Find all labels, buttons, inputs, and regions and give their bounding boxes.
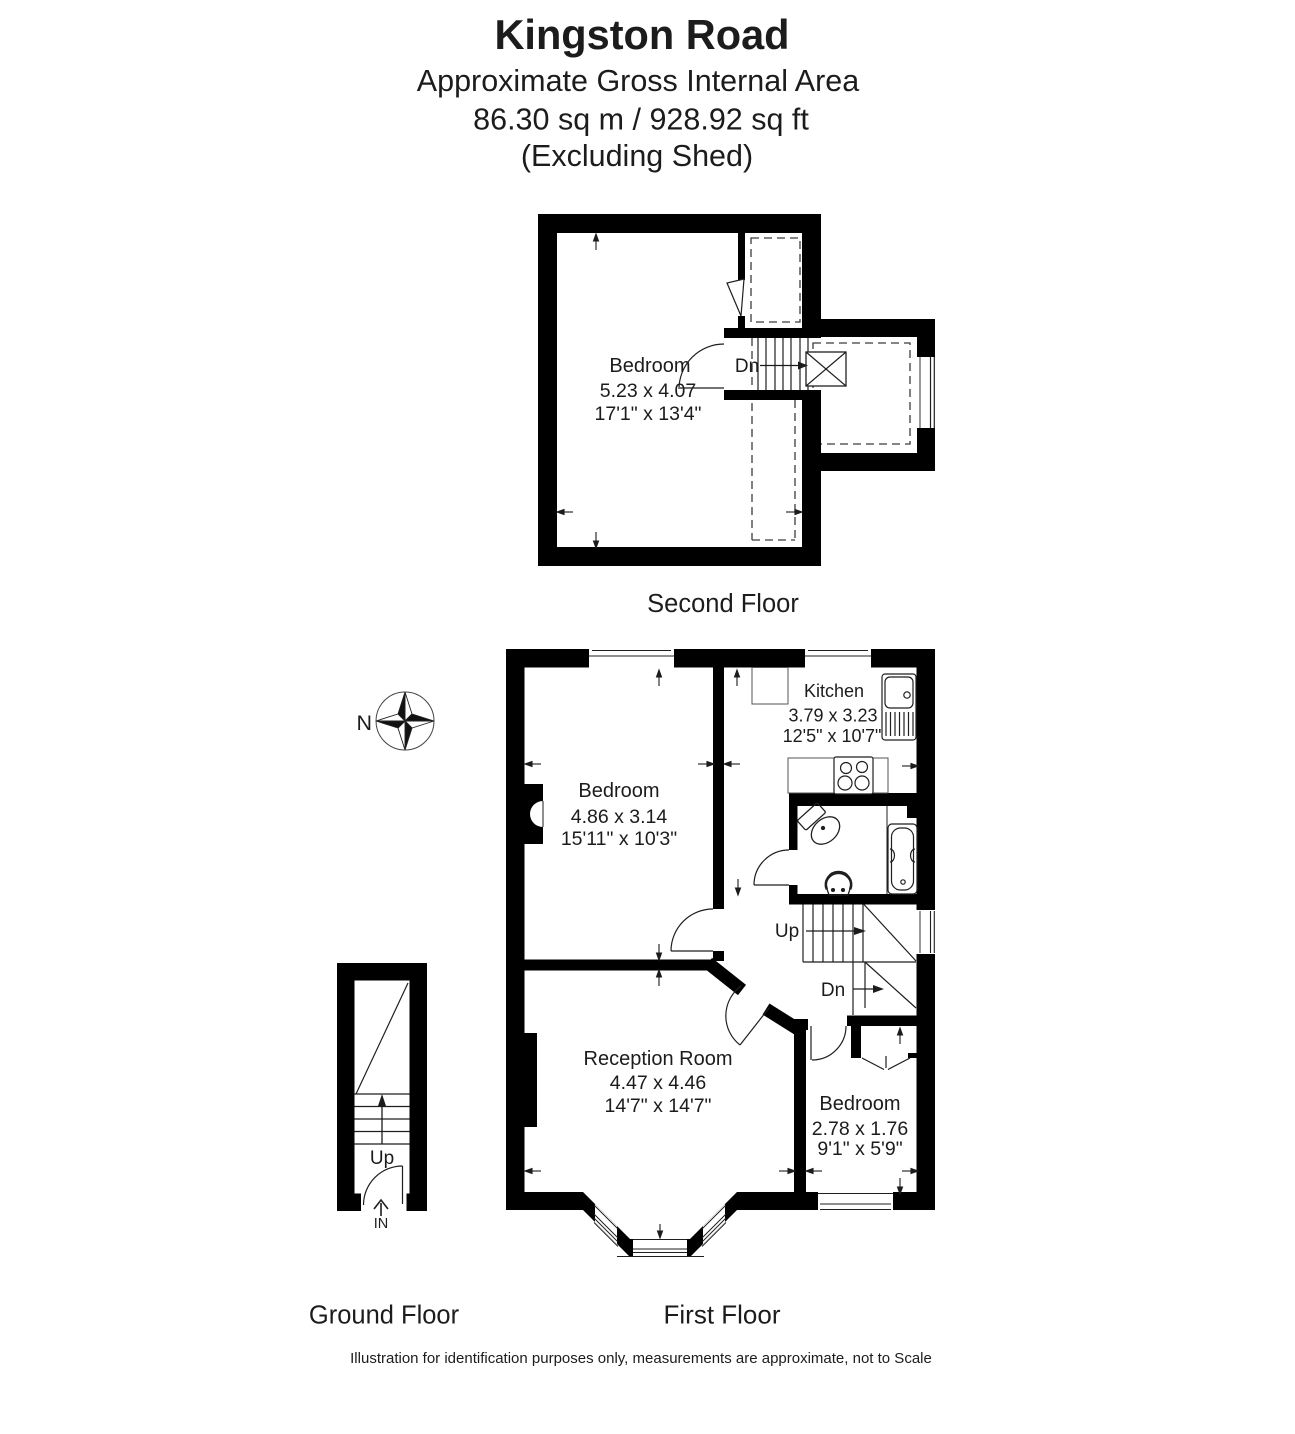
svg-text:15'11" x 10'3": 15'11" x 10'3" [561, 828, 677, 850]
svg-text:Reception Room: Reception Room [584, 1048, 733, 1070]
svg-text:Up: Up [370, 1148, 394, 1169]
svg-text:2.78 x 1.76: 2.78 x 1.76 [812, 1118, 909, 1140]
svg-text:N: N [356, 711, 372, 735]
svg-text:Bedroom: Bedroom [609, 355, 690, 377]
svg-text:First Floor: First Floor [664, 1300, 781, 1330]
svg-text:86.30 sq m / 928.92 sq ft: 86.30 sq m / 928.92 sq ft [473, 103, 809, 137]
svg-text:3.79 x 3.23: 3.79 x 3.23 [788, 706, 877, 726]
svg-text:4.86 x 3.14: 4.86 x 3.14 [571, 806, 668, 828]
svg-text:Dn: Dn [821, 980, 845, 1001]
svg-text:Illustration for identificatio: Illustration for identification purposes… [350, 1350, 932, 1367]
svg-text:Ground Floor: Ground Floor [309, 1302, 460, 1330]
svg-text:12'5" x 10'7": 12'5" x 10'7" [783, 726, 882, 746]
svg-text:Second Floor: Second Floor [647, 590, 799, 618]
svg-text:Bedroom: Bedroom [578, 780, 659, 802]
svg-text:9'1" x 5'9": 9'1" x 5'9" [817, 1138, 902, 1160]
svg-text:Dn: Dn [735, 356, 759, 377]
svg-text:Approximate Gross Internal Are: Approximate Gross Internal Area [417, 64, 859, 98]
svg-text:Kingston Road: Kingston Road [494, 11, 789, 58]
svg-text:IN: IN [374, 1216, 389, 1232]
svg-text:14'7" x 14'7": 14'7" x 14'7" [605, 1095, 712, 1117]
svg-text:4.47 x 4.46: 4.47 x 4.46 [610, 1072, 707, 1094]
svg-text:Bedroom: Bedroom [819, 1093, 900, 1115]
svg-text:5.23 x 4.07: 5.23 x 4.07 [600, 380, 697, 402]
svg-text:Up: Up [775, 921, 799, 942]
svg-text:Kitchen: Kitchen [804, 681, 864, 701]
svg-text:17'1" x 13'4": 17'1" x 13'4" [595, 403, 702, 425]
svg-text:(Excluding Shed): (Excluding Shed) [521, 139, 753, 173]
